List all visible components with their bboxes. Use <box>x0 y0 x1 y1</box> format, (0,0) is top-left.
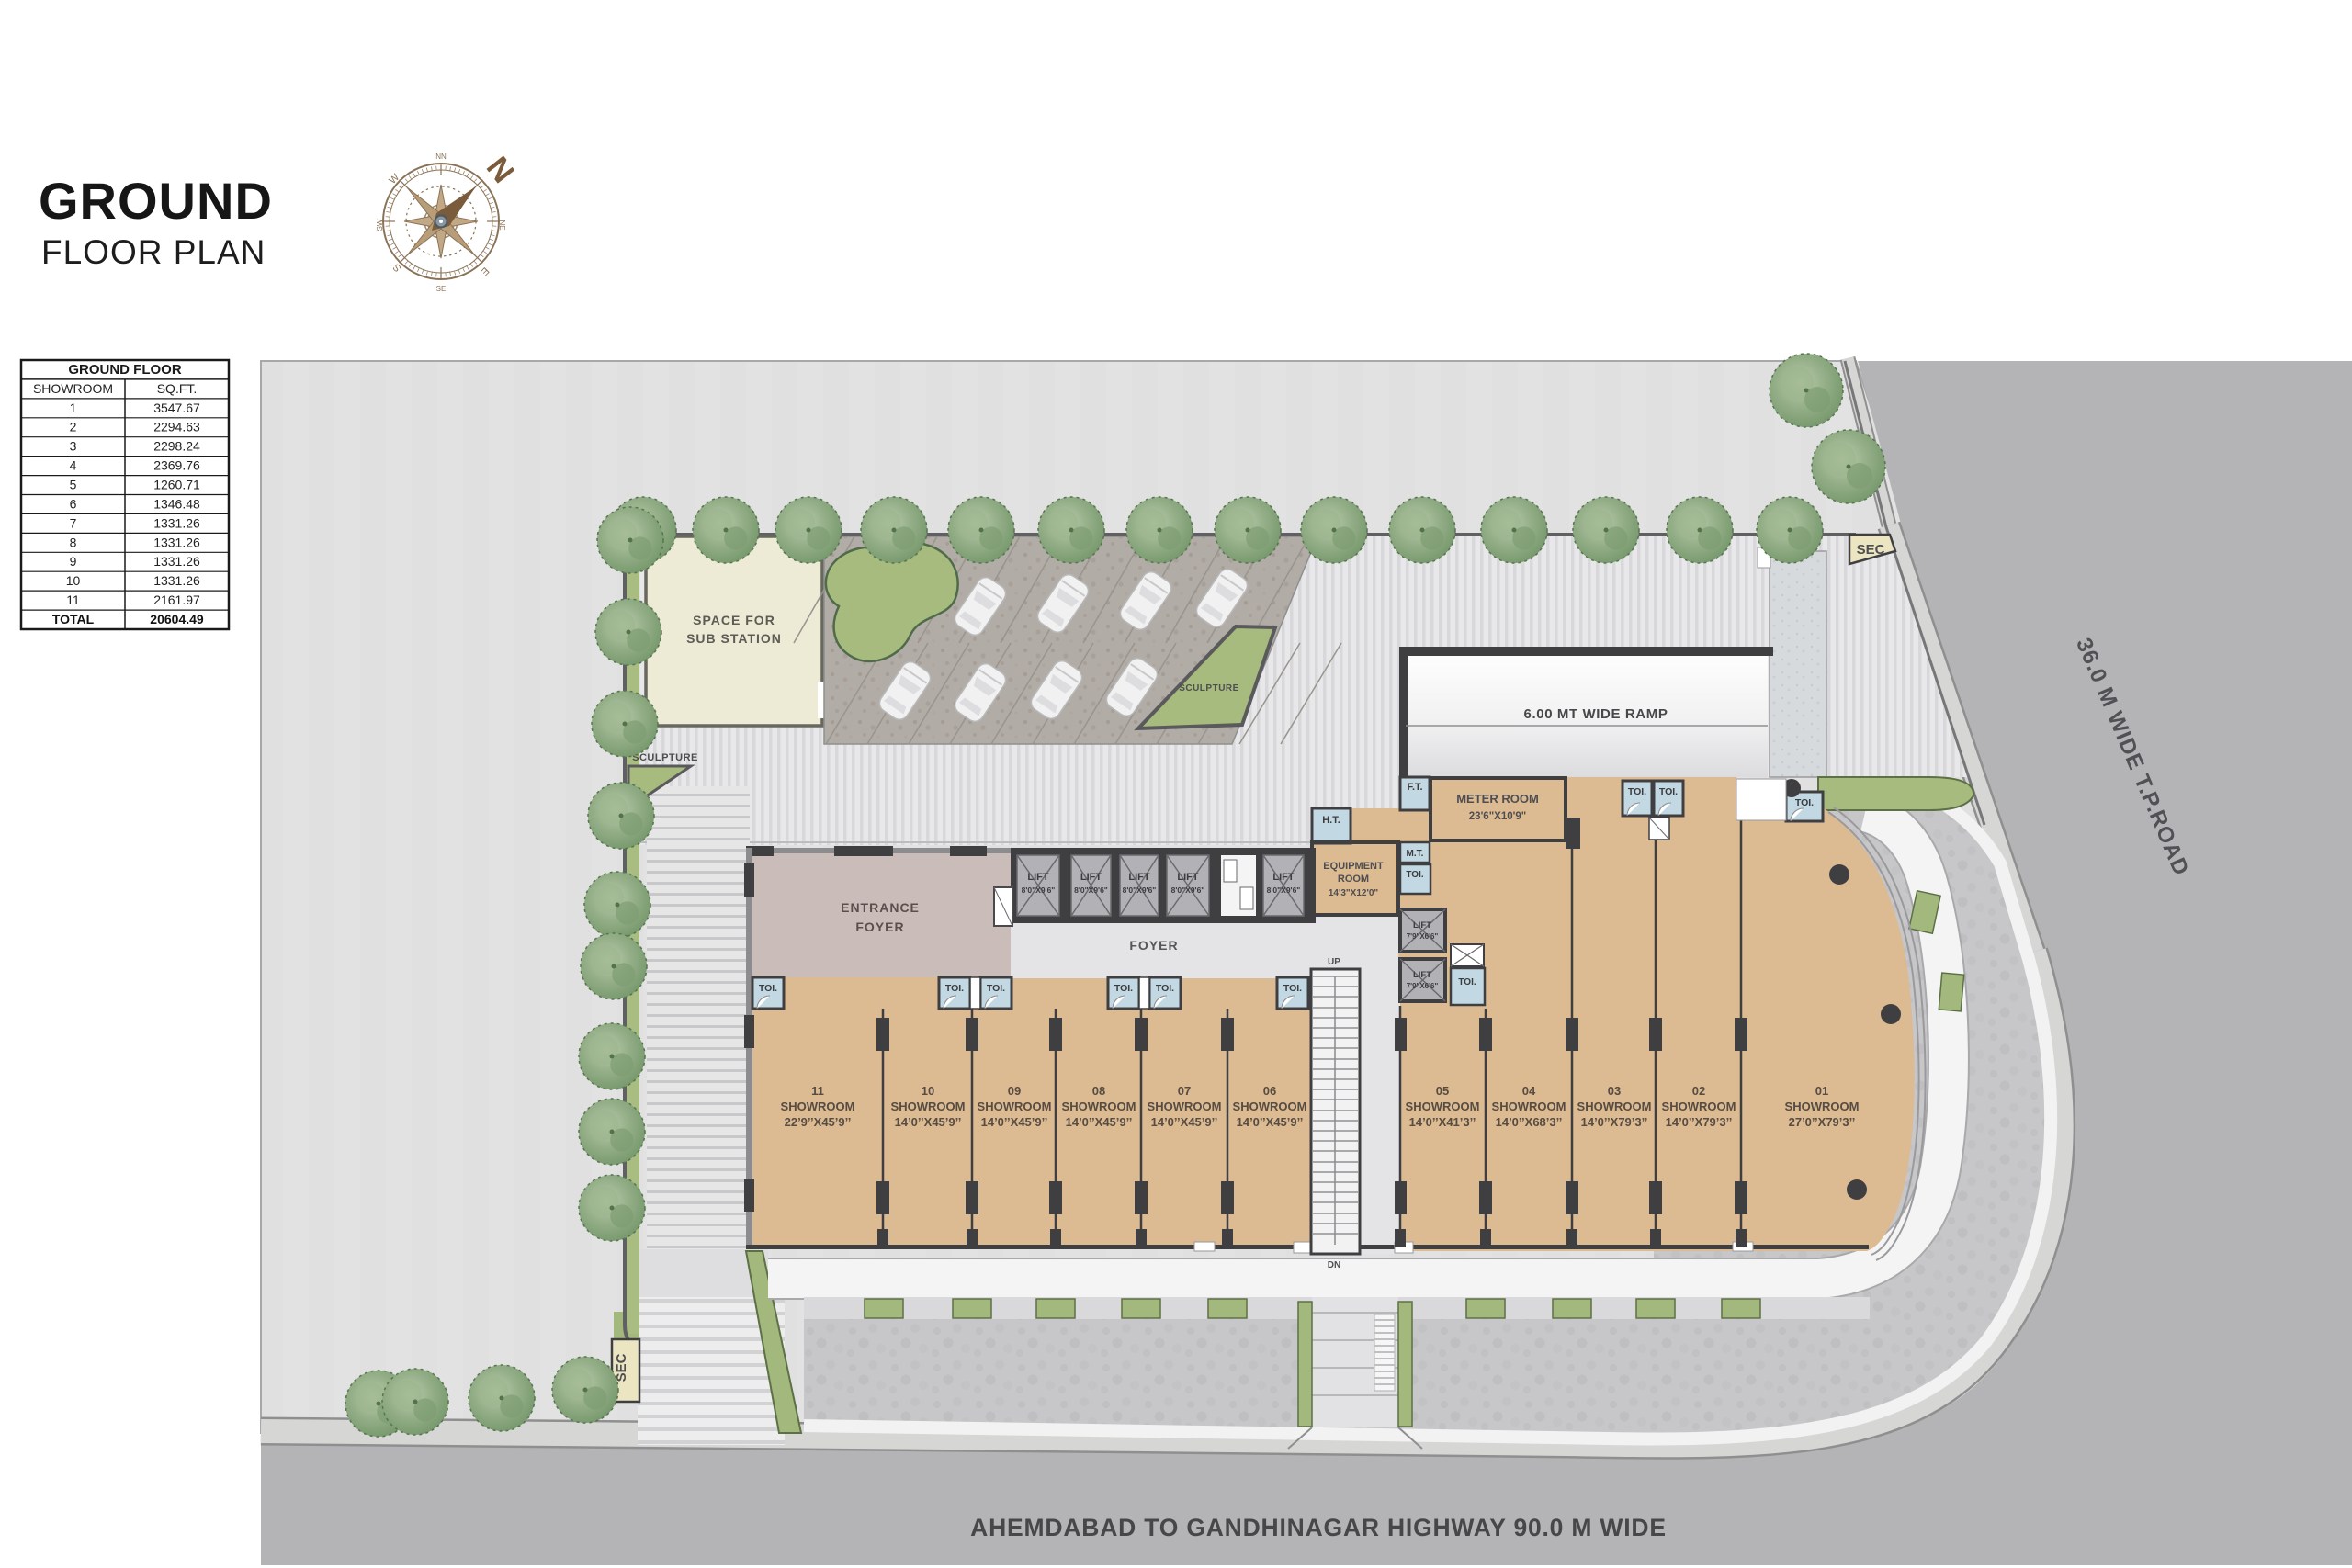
svg-text:TOTAL: TOTAL <box>52 612 95 626</box>
svg-text:FOYER: FOYER <box>1129 938 1178 953</box>
svg-text:05: 05 <box>1436 1084 1449 1098</box>
svg-text:LIFT: LIFT <box>1080 872 1102 883</box>
svg-text:SHOWROOM: SHOWROOM <box>781 1100 855 1113</box>
svg-text:NE: NE <box>498 220 506 230</box>
svg-text:8'0"X9'6": 8'0"X9'6" <box>1022 886 1056 895</box>
svg-text:LIFT: LIFT <box>1272 872 1294 883</box>
svg-text:20604.49: 20604.49 <box>150 612 204 626</box>
svg-text:1346.48: 1346.48 <box>153 496 200 511</box>
svg-text:TOI.: TOI. <box>759 983 777 994</box>
svg-text:NN: NN <box>435 152 447 161</box>
svg-text:14’0’’X79’3’’: 14’0’’X79’3’’ <box>1666 1115 1733 1129</box>
svg-text:SQ.FT.: SQ.FT. <box>157 381 198 396</box>
svg-text:EQUIPMENT: EQUIPMENT <box>1323 861 1384 872</box>
svg-text:8'0"X9'6": 8'0"X9'6" <box>1074 886 1108 895</box>
svg-text:2161.97: 2161.97 <box>153 592 200 607</box>
svg-text:14’0’’X45’9’’: 14’0’’X45’9’’ <box>1151 1115 1218 1129</box>
svg-text:14’0’’X45’9’’: 14’0’’X45’9’’ <box>1237 1115 1304 1129</box>
svg-text:SHOWROOM: SHOWROOM <box>33 381 113 396</box>
svg-text:1331.26: 1331.26 <box>153 573 200 588</box>
svg-text:5: 5 <box>70 478 77 492</box>
svg-text:SHOWROOM: SHOWROOM <box>891 1100 966 1113</box>
svg-text:LIFT: LIFT <box>1413 970 1431 980</box>
svg-text:2369.76: 2369.76 <box>153 458 200 473</box>
svg-text:23'6"X10'9": 23'6"X10'9" <box>1469 811 1526 822</box>
svg-text:4: 4 <box>70 458 77 473</box>
svg-text:ROOM: ROOM <box>1338 874 1369 885</box>
svg-text:3547.67: 3547.67 <box>153 400 200 415</box>
svg-text:14'3"X12'0": 14'3"X12'0" <box>1329 888 1379 898</box>
svg-text:H.T.: H.T. <box>1322 815 1340 826</box>
svg-text:6: 6 <box>70 496 77 511</box>
svg-text:SCULPTURE: SCULPTURE <box>1179 683 1239 694</box>
svg-text:AHEMDABAD TO GANDHINAGAR HIGHW: AHEMDABAD TO GANDHINAGAR HIGHWAY 90.0 M … <box>970 1514 1667 1541</box>
svg-text:LIFT: LIFT <box>1027 872 1048 883</box>
svg-text:9: 9 <box>70 554 77 569</box>
svg-text:SHOWROOM: SHOWROOM <box>1148 1100 1222 1113</box>
svg-text:SHOWROOM: SHOWROOM <box>1662 1100 1736 1113</box>
svg-text:SHOWROOM: SHOWROOM <box>1233 1100 1307 1113</box>
svg-text:DN: DN <box>1328 1260 1340 1270</box>
svg-text:GROUND: GROUND <box>39 172 273 230</box>
svg-text:UP: UP <box>1328 957 1340 967</box>
svg-text:10: 10 <box>66 573 81 588</box>
svg-text:LIFT: LIFT <box>1413 920 1431 931</box>
svg-text:11: 11 <box>66 592 80 607</box>
svg-text:M.T.: M.T. <box>1407 849 1424 859</box>
svg-text:2294.63: 2294.63 <box>153 420 200 434</box>
svg-text:SHOWROOM: SHOWROOM <box>1062 1100 1136 1113</box>
svg-text:09: 09 <box>1008 1084 1021 1098</box>
svg-text:3: 3 <box>70 439 77 454</box>
svg-text:27’0’’X79’3’’: 27’0’’X79’3’’ <box>1789 1115 1856 1129</box>
svg-text:14’0’’X45’9’’: 14’0’’X45’9’’ <box>981 1115 1048 1129</box>
svg-text:1331.26: 1331.26 <box>153 554 200 569</box>
svg-text:TOI.: TOI. <box>1283 983 1302 994</box>
svg-text:11: 11 <box>811 1084 824 1098</box>
svg-text:SW: SW <box>376 219 384 231</box>
svg-text:SUB STATION: SUB STATION <box>686 631 782 646</box>
svg-text:14’0’’X45’9’’: 14’0’’X45’9’’ <box>895 1115 962 1129</box>
svg-text:1260.71: 1260.71 <box>153 478 200 492</box>
svg-text:SHOWROOM: SHOWROOM <box>978 1100 1052 1113</box>
svg-text:METER ROOM: METER ROOM <box>1456 792 1539 806</box>
svg-text:14’0’’X45’9’’: 14’0’’X45’9’’ <box>1066 1115 1133 1129</box>
svg-text:F.T.: F.T. <box>1407 782 1422 793</box>
svg-text:14’0’’X41’3’’: 14’0’’X41’3’’ <box>1409 1115 1476 1129</box>
svg-text:04: 04 <box>1522 1084 1536 1098</box>
svg-text:LIFT: LIFT <box>1128 872 1149 883</box>
svg-text:8'0"X9'6": 8'0"X9'6" <box>1267 886 1301 895</box>
svg-text:22’9’’X45’9’’: 22’9’’X45’9’’ <box>785 1115 852 1129</box>
svg-text:TOI.: TOI. <box>1628 786 1646 797</box>
svg-text:1331.26: 1331.26 <box>153 535 200 549</box>
svg-text:7: 7 <box>70 515 77 530</box>
svg-text:08: 08 <box>1092 1084 1105 1098</box>
svg-text:SCULPTURE: SCULPTURE <box>632 752 698 763</box>
svg-text:8: 8 <box>70 535 77 549</box>
svg-text:GROUND FLOOR: GROUND FLOOR <box>68 362 181 378</box>
svg-text:SHOWROOM: SHOWROOM <box>1492 1100 1566 1113</box>
svg-text:TOI.: TOI. <box>987 983 1005 994</box>
svg-text:SHOWROOM: SHOWROOM <box>1406 1100 1480 1113</box>
svg-text:SHOWROOM: SHOWROOM <box>1785 1100 1860 1113</box>
svg-text:02: 02 <box>1692 1084 1705 1098</box>
svg-text:SPACE FOR: SPACE FOR <box>693 613 775 627</box>
svg-text:07: 07 <box>1178 1084 1191 1098</box>
svg-text:TOI.: TOI. <box>1659 786 1678 797</box>
svg-text:7'9"X6'6": 7'9"X6'6" <box>1407 932 1439 941</box>
svg-text:TOI.: TOI. <box>1156 983 1174 994</box>
svg-text:LIFT: LIFT <box>1177 872 1198 883</box>
svg-text:SE: SE <box>436 285 447 293</box>
svg-text:FOYER: FOYER <box>855 919 904 934</box>
svg-text:TOI.: TOI. <box>1458 977 1476 987</box>
svg-text:14’0’’X68’3’’: 14’0’’X68’3’’ <box>1496 1115 1563 1129</box>
svg-text:03: 03 <box>1608 1084 1621 1098</box>
svg-text:14’0’’X79’3’’: 14’0’’X79’3’’ <box>1581 1115 1648 1129</box>
svg-text:06: 06 <box>1263 1084 1276 1098</box>
svg-text:1: 1 <box>70 400 77 415</box>
svg-text:TOI.: TOI. <box>945 983 964 994</box>
svg-text:ENTRANCE: ENTRANCE <box>841 900 920 915</box>
svg-text:10: 10 <box>922 1084 934 1098</box>
svg-text:FLOOR PLAN: FLOOR PLAN <box>41 233 266 271</box>
svg-text:1331.26: 1331.26 <box>153 515 200 530</box>
svg-text:SHOWROOM: SHOWROOM <box>1577 1100 1652 1113</box>
svg-text:01: 01 <box>1815 1084 1828 1098</box>
svg-text:8'0"X9'6": 8'0"X9'6" <box>1171 886 1205 895</box>
svg-text:7'9"X6'6": 7'9"X6'6" <box>1407 982 1439 990</box>
svg-text:TOI.: TOI. <box>1406 870 1423 880</box>
svg-text:TOI.: TOI. <box>1795 797 1814 808</box>
svg-text:SEC: SEC <box>1857 542 1885 558</box>
svg-text:2: 2 <box>70 420 77 434</box>
svg-text:6.00 MT WIDE RAMP: 6.00 MT WIDE RAMP <box>1524 706 1668 722</box>
svg-text:8'0"X9'6": 8'0"X9'6" <box>1123 886 1157 895</box>
svg-text:2298.24: 2298.24 <box>153 439 200 454</box>
svg-text:TOI.: TOI. <box>1114 983 1133 994</box>
